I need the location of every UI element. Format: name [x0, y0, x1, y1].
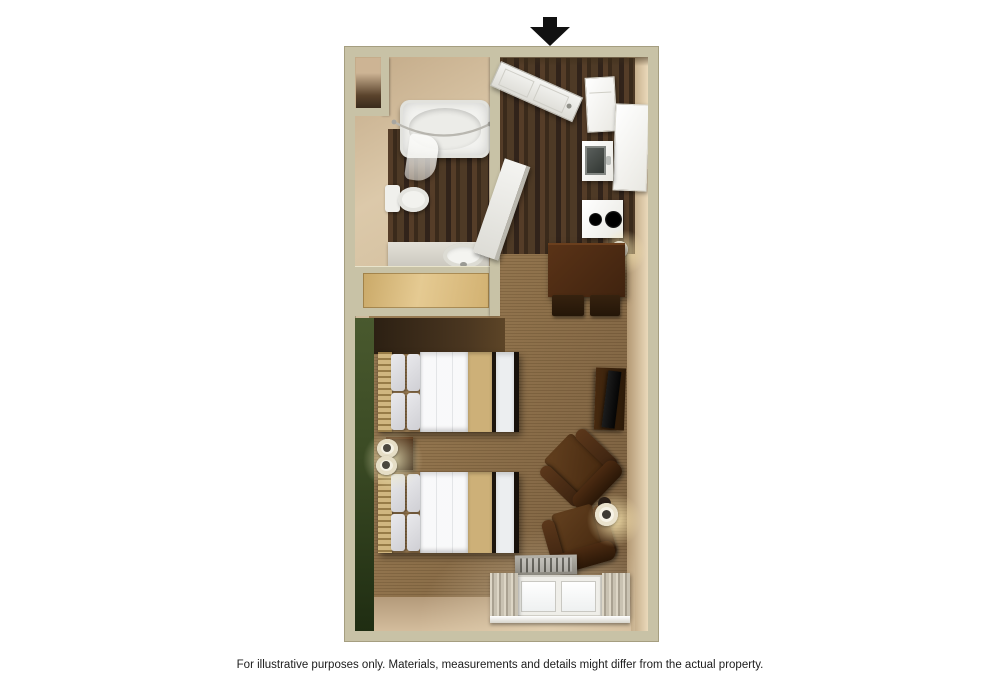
side-lamp-core [602, 510, 611, 519]
bed [378, 352, 519, 432]
kitchen-sink-counter [582, 141, 613, 181]
duvet [420, 352, 468, 432]
headboard [378, 352, 392, 432]
headboard [378, 472, 392, 553]
toilet-bowl [398, 187, 429, 212]
dining-table [548, 243, 625, 297]
pillows [391, 474, 420, 551]
closet-sliding-door [363, 273, 489, 308]
duvet [420, 472, 468, 553]
window-pane [561, 581, 596, 612]
bed-runner [468, 352, 492, 432]
bed-runner [468, 472, 492, 553]
burner [589, 213, 602, 226]
kitchen-sink [585, 146, 606, 175]
corner-niche [356, 58, 381, 108]
kitchen-faucet [606, 156, 611, 165]
floorplan-interior [355, 57, 648, 631]
green-accent-wall [355, 318, 374, 631]
window-frame [516, 575, 602, 617]
floorplan-page: For illustrative purposes only. Material… [0, 0, 1000, 700]
window-sill [490, 616, 630, 623]
bathroom [355, 57, 500, 316]
disclaimer-text: For illustrative purposes only. Material… [0, 659, 1000, 671]
dining-chair [552, 295, 584, 316]
entrance-arrow-icon [526, 17, 574, 47]
pillows [391, 354, 420, 430]
footboard [514, 352, 519, 432]
top-wall-shadow [498, 57, 648, 66]
cooktop [582, 200, 623, 238]
door-knob [566, 103, 573, 110]
refrigerator [585, 76, 618, 132]
wall-shadow [374, 318, 505, 354]
window-pane [521, 581, 556, 612]
dining-chair [590, 295, 620, 316]
kitchen-cabinet [612, 103, 648, 191]
window [490, 573, 630, 623]
nightstand-lamp [376, 456, 397, 475]
footboard [514, 472, 519, 553]
burner [605, 211, 622, 228]
shower-curtain-rod [391, 112, 493, 148]
niche-wall [381, 57, 389, 115]
floorplan [345, 47, 658, 641]
curtain [490, 573, 518, 617]
curtain [602, 573, 630, 617]
niche-wall [355, 108, 389, 116]
bed [378, 472, 519, 553]
